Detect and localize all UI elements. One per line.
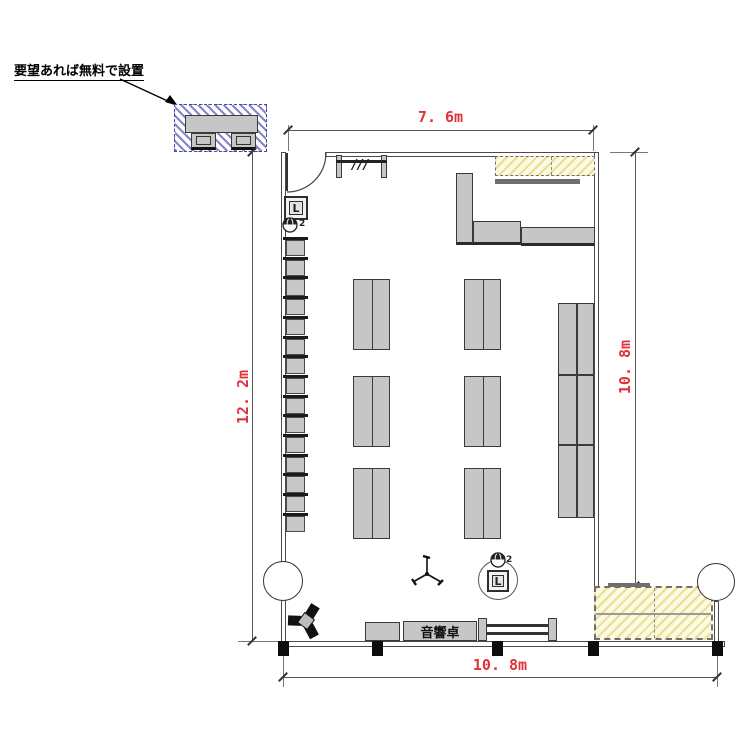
- column-bottom-right: [697, 563, 735, 601]
- ceiling-speaker-count-bottom: 2: [506, 555, 512, 565]
- wall-post: [372, 641, 383, 656]
- stacked-chair: [286, 437, 305, 453]
- table-split-line: [372, 280, 374, 349]
- ceiling-fan-icon: [409, 552, 445, 588]
- stacked-chair: [286, 260, 305, 276]
- right-block-section: [558, 445, 594, 518]
- shelf-post-right: [381, 155, 387, 178]
- l-counter-middle: [473, 221, 521, 245]
- l-counter-vertical: [456, 173, 473, 245]
- counter-divider: [654, 588, 655, 638]
- equipment-leg-left: [191, 133, 216, 150]
- table-double: [353, 279, 390, 350]
- sound-desk: 音響卓: [403, 621, 477, 641]
- dim-label-left: 12. 2m: [234, 357, 252, 437]
- shelf-post-left: [336, 155, 342, 178]
- service-bar-bottom: [608, 583, 650, 587]
- dim-ext-left-bottom: [238, 641, 282, 642]
- table-split-line: [576, 446, 578, 517]
- table-double: [464, 279, 501, 350]
- stacked-chair: [286, 398, 305, 414]
- table-split-line: [483, 280, 485, 349]
- right-block-section: [558, 375, 594, 445]
- partition-hatch-marks: ///: [352, 158, 369, 173]
- stacked-chair: [286, 358, 305, 374]
- wall-post: [588, 641, 599, 656]
- dim-line-left: [252, 151, 253, 641]
- optional-equipment-area: [174, 104, 267, 152]
- stacked-chair: [286, 240, 305, 256]
- stacked-chair: [286, 417, 305, 433]
- stacked-chair: [286, 319, 305, 335]
- dim-label-right: 10. 8m: [616, 327, 634, 407]
- equipment-table: [185, 115, 258, 133]
- table-split-line: [372, 469, 374, 538]
- table-double: [353, 376, 390, 447]
- equipment-leg-right: [231, 133, 256, 150]
- service-bar-top: [495, 179, 580, 184]
- bench-rail-top: [487, 624, 548, 627]
- ceiling-speaker-count-left: 2: [299, 219, 305, 229]
- stacked-chair: [286, 339, 305, 355]
- dim-line-bottom: [283, 677, 717, 678]
- wall-post: [712, 641, 723, 656]
- wall-right-bump: [714, 601, 719, 642]
- stacked-chair: [286, 299, 305, 315]
- ceiling-speaker-icon-left: [282, 217, 298, 233]
- wall-post: [492, 641, 503, 656]
- dim-line-top: [288, 130, 593, 131]
- table-split-line: [576, 304, 578, 374]
- dim-label-bottom: 10. 8m: [283, 656, 717, 674]
- stacked-chair: [286, 457, 305, 473]
- stacked-chair: [286, 378, 305, 394]
- dim-line-right: [635, 152, 636, 586]
- speaker-box-left-label: L: [289, 201, 303, 215]
- dim-label-top: 7. 6m: [288, 108, 593, 126]
- table-split-line: [576, 376, 578, 444]
- stacked-chair: [286, 516, 305, 532]
- door-swing-arc: [286, 152, 331, 197]
- table-split-line: [483, 469, 485, 538]
- table-double: [353, 468, 390, 539]
- table-split-line: [372, 377, 374, 446]
- wall-post: [278, 641, 289, 656]
- bench-post-right: [548, 618, 557, 641]
- floorplan-canvas: 要望あれば無料で設置 7. 6m 12. 2m 10. 8m 10. 8m: [0, 0, 750, 750]
- right-block-section: [558, 303, 594, 375]
- counter-bottom-right: [594, 586, 713, 640]
- stacked-chair: [286, 476, 305, 492]
- speaker-box-bottom: L: [487, 570, 509, 592]
- table-double: [464, 468, 501, 539]
- table-double: [464, 376, 501, 447]
- stacked-chair: [286, 496, 305, 512]
- column-bottom-left: [263, 561, 303, 601]
- stacked-chair: [286, 279, 305, 295]
- ceiling-speaker-icon-bottom: [490, 552, 506, 568]
- side-table: [365, 622, 400, 641]
- counter-divider: [551, 157, 552, 175]
- counter-top-right: [495, 156, 595, 176]
- fan-propeller-icon: [287, 602, 325, 640]
- l-counter-right: [521, 227, 595, 246]
- wall-right: [594, 152, 599, 587]
- speaker-box-bottom-label: L: [492, 575, 504, 587]
- table-split-line: [483, 377, 485, 446]
- dim-ext-right-top: [610, 152, 648, 153]
- bench-post-left: [478, 618, 487, 641]
- bench-rail-bottom: [487, 632, 548, 635]
